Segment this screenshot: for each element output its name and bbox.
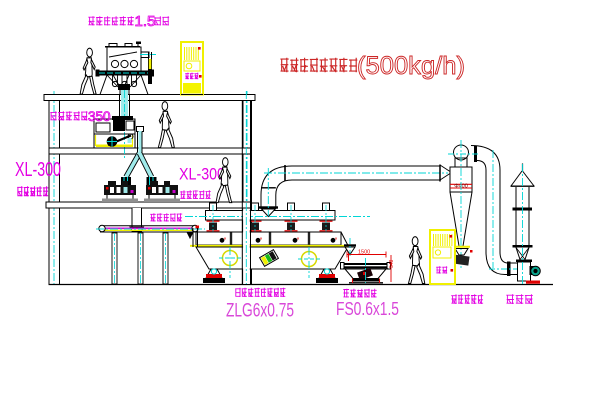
svg-text:1.5: 1.5 [135,13,156,30]
svg-text:FS0.6x1.5: FS0.6x1.5 [336,299,399,319]
svg-text:(500kg/h): (500kg/h) [357,52,465,80]
svg-text:XL-300: XL-300 [179,165,225,184]
svg-text:ZLG6x0.75: ZLG6x0.75 [226,301,294,322]
svg-text:1500: 1500 [358,250,370,256]
svg-text:350: 350 [88,109,111,124]
svg-text:XL-300: XL-300 [15,159,61,181]
svg-text:548: 548 [389,259,395,268]
